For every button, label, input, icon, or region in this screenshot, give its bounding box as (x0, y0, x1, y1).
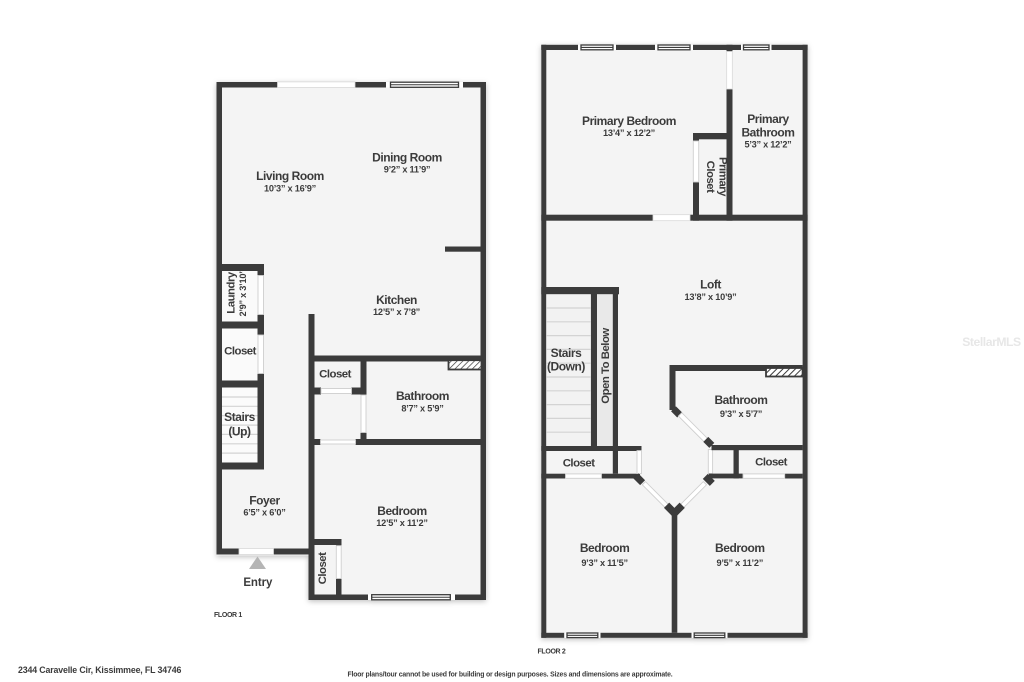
svg-text:Closet: Closet (563, 458, 596, 470)
svg-text:8’7” x 5’9”: 8’7” x 5’9” (401, 403, 443, 413)
svg-text:10’3” x 16’9”: 10’3” x 16’9” (264, 183, 316, 193)
svg-text:Dining Room: Dining Room (372, 151, 442, 165)
svg-text:Bathroom: Bathroom (396, 389, 449, 403)
svg-text:5’3” x 12’2”: 5’3” x 12’2” (744, 140, 791, 150)
svg-text:Closet: Closet (317, 552, 329, 585)
svg-text:Bedroom: Bedroom (580, 541, 630, 555)
svg-text:StellarMLS: StellarMLS (962, 335, 1021, 349)
svg-text:Laundry: Laundry (226, 271, 238, 314)
svg-text:6’5” x 6’0”: 6’5” x 6’0” (243, 508, 285, 518)
svg-text:9’5” x 11’2”: 9’5” x 11’2” (717, 558, 764, 568)
svg-text:Primary: Primary (747, 112, 789, 126)
svg-text:Stairs: Stairs (551, 346, 582, 360)
svg-text:Primary Bedroom: Primary Bedroom (582, 114, 676, 128)
svg-text:Loft: Loft (700, 278, 721, 292)
svg-text:Closet: Closet (704, 161, 716, 194)
svg-text:13’4” x 12’2”: 13’4” x 12’2” (603, 128, 655, 138)
svg-text:Living Room: Living Room (256, 169, 324, 183)
svg-text:Foyer: Foyer (249, 494, 280, 508)
svg-text:2’9” x 3’10”: 2’9” x 3’10” (238, 269, 248, 316)
svg-text:Bathroom: Bathroom (741, 126, 794, 140)
svg-text:Floor plans/tour cannot be use: Floor plans/tour cannot be used for buil… (347, 672, 672, 679)
svg-text:12’5” x 7’8”: 12’5” x 7’8” (373, 307, 420, 317)
svg-text:Entry: Entry (243, 577, 273, 589)
svg-text:9’3” x 5’7”: 9’3” x 5’7” (720, 409, 762, 419)
svg-text:Closet: Closet (319, 369, 352, 381)
svg-text:FLOOR 2: FLOOR 2 (538, 649, 566, 656)
svg-text:Kitchen: Kitchen (376, 293, 417, 307)
svg-text:Bedroom: Bedroom (377, 504, 427, 518)
svg-text:9’2” x 11’9”: 9’2” x 11’9” (384, 165, 431, 175)
svg-text:Stairs: Stairs (224, 410, 255, 424)
svg-text:(Up): (Up) (228, 425, 251, 439)
svg-text:Bathroom: Bathroom (714, 393, 767, 407)
svg-text:2344 Caravelle Cir, Kissimmee,: 2344 Caravelle Cir, Kissimmee, FL 34746 (18, 665, 181, 675)
svg-text:Bedroom: Bedroom (715, 541, 765, 555)
svg-text:(Down): (Down) (547, 359, 585, 373)
svg-text:9’3” x 11’5”: 9’3” x 11’5” (581, 558, 628, 568)
svg-text:FLOOR 1: FLOOR 1 (214, 612, 242, 619)
svg-text:Closet: Closet (755, 457, 788, 469)
svg-text:Closet: Closet (224, 346, 257, 358)
svg-text:Primary: Primary (717, 157, 729, 197)
svg-text:12’5” x 11’2”: 12’5” x 11’2” (376, 518, 427, 528)
svg-text:Open To Below: Open To Below (600, 328, 612, 404)
svg-text:13’8” x 10’9”: 13’8” x 10’9” (685, 292, 737, 302)
